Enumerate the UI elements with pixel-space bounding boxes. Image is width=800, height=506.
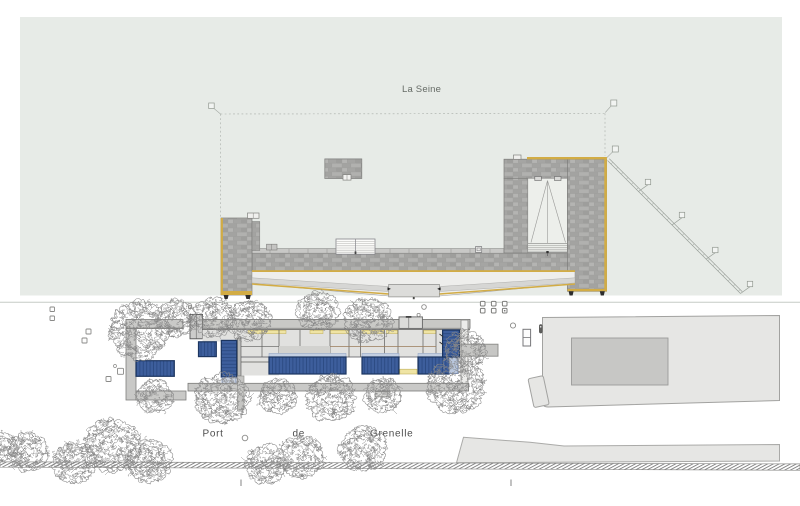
svg-text:Port: Port (203, 429, 224, 440)
svg-text:La Seine: La Seine (402, 84, 441, 95)
